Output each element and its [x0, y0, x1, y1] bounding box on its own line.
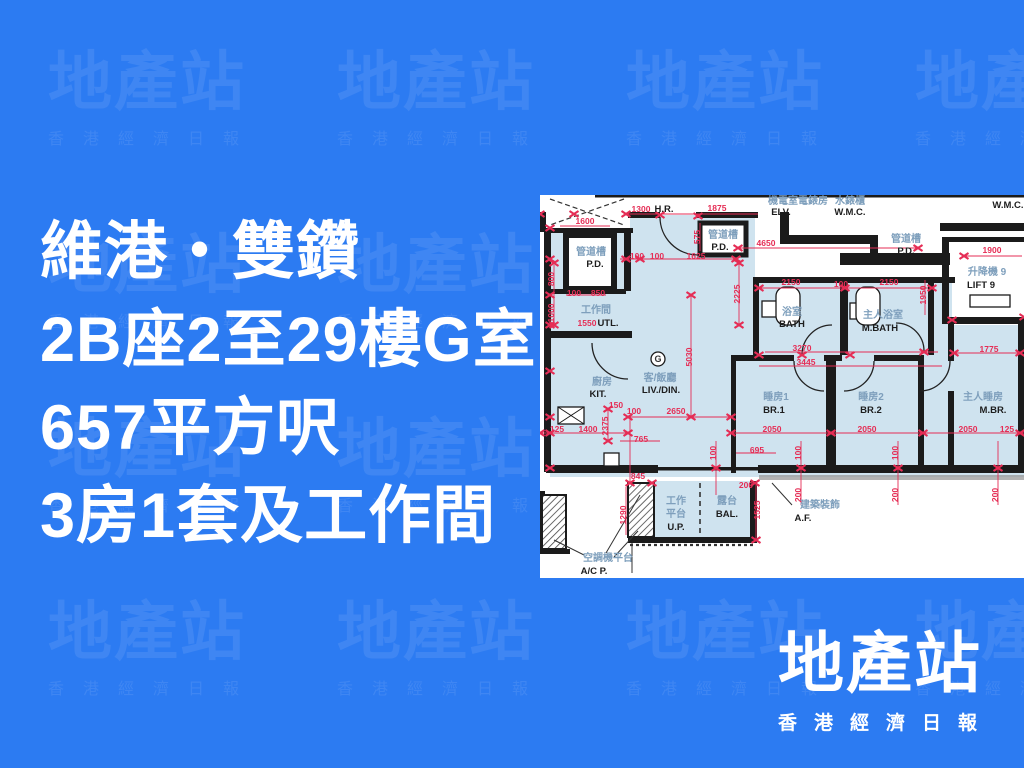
room-label: 管道槽 — [576, 245, 606, 258]
dimension-text: 100 — [708, 446, 718, 460]
headline-line-2: 2B座2至29樓G室 — [40, 304, 537, 376]
dimension-text: 100 — [890, 446, 900, 460]
room-label: UTL. — [597, 318, 618, 329]
room-label: BATH — [779, 319, 805, 330]
room-label: 建築裝飾 — [799, 498, 840, 511]
room-label: 工作間 — [581, 303, 611, 316]
room-label: 廚房 — [592, 375, 612, 388]
dimension-text: 100 — [650, 251, 664, 261]
dimension-text: 200 — [890, 488, 900, 502]
dimension-text: 575 — [692, 230, 702, 244]
room-label: U.P. — [667, 522, 684, 533]
dimension-text: 200 — [990, 488, 1000, 502]
room-label: 工作 — [666, 494, 686, 507]
poster-canvas: 地產站香港經濟日報地產站香港經濟日報地產站香港經濟日報地產站香港經濟日報地產站香… — [0, 0, 1024, 768]
dimension-text: 100 — [567, 288, 581, 298]
dimension-text: 100 — [630, 251, 644, 261]
headline-line-4: 3房1套及工作間 — [40, 480, 496, 552]
brand-logo: 地產站 香港經濟日報 — [778, 630, 994, 735]
room-label: 主人浴室 — [863, 308, 903, 321]
floorplan-image: 1300187516005751008508001000155010010016… — [540, 195, 1024, 578]
floorplan-svg: 1300187516005751008508001000155010010016… — [540, 195, 1024, 578]
watermark: 地產站香港經濟日報 — [337, 600, 547, 699]
dimension-text: 4650 — [757, 238, 776, 248]
room-label: KIT. — [590, 389, 607, 400]
dimension-text: 100 — [793, 446, 803, 460]
watermark: 地產站香港經濟日報 — [915, 50, 1024, 149]
room-label: 客/飯廳 — [643, 371, 677, 384]
dimension-text: 100 — [834, 279, 848, 289]
room-label: H.R. — [655, 204, 674, 215]
room-label: 空調機平台 — [583, 551, 633, 564]
dimension-text: 3270 — [793, 343, 812, 353]
ac-platform-mid — [628, 483, 654, 537]
dimension-text: 800 — [546, 272, 556, 286]
ac-platform-left — [542, 495, 566, 549]
watermark: 地產站香港經濟日報 — [626, 50, 836, 149]
room-label: 管道槽 — [891, 232, 921, 245]
dimension-text: 125 — [550, 424, 564, 434]
room-label: 睡房1 — [763, 390, 789, 403]
dimension-text: 1900 — [983, 245, 1002, 255]
dimension-text: 2150 — [880, 277, 899, 287]
room-label: 浴室 — [782, 305, 802, 318]
dimension-text: 1400 — [579, 424, 598, 434]
room-label: 主人睡房 — [963, 390, 1003, 403]
dimension-text: 1875 — [708, 203, 727, 213]
dimension-text: 765 — [634, 434, 648, 444]
room-label: LIFT 9 — [967, 280, 995, 291]
dimension-text: 200 — [739, 480, 753, 490]
room-label: 水錶櫃 — [834, 195, 865, 207]
dimension-text: 1550 — [578, 318, 597, 328]
headline-line-3: 657平方呎 — [40, 392, 340, 464]
room-label: P.D. — [897, 246, 914, 257]
dimension-text: 100 — [627, 406, 641, 416]
room-label: A/C P. — [581, 566, 608, 577]
room-label: M.BR. — [980, 405, 1007, 416]
room-label: BR.2 — [860, 405, 882, 416]
dimension-text: 1300 — [632, 204, 651, 214]
brand-logo-title: 地產站 — [778, 630, 994, 696]
room-label: 睡房2 — [858, 390, 884, 403]
room-label: BAL. — [716, 509, 738, 520]
dimension-text: 1775 — [980, 344, 999, 354]
room-label: A.F. — [795, 513, 812, 524]
dimension-text: 1525 — [752, 500, 762, 519]
dimension-text: 2650 — [667, 406, 686, 416]
af-band — [759, 475, 1024, 480]
dimension-text: 1625 — [687, 251, 706, 261]
room-label: 機電室電錶房 — [768, 195, 828, 207]
watermark: 地產站香港經濟日報 — [48, 600, 258, 699]
dimension-text: 2150 — [782, 277, 801, 287]
dimension-text: 2050 — [858, 424, 877, 434]
room-label: G — [654, 354, 661, 364]
dimension-text: 3445 — [797, 357, 816, 367]
room-label: 管道槽 — [708, 228, 738, 241]
dimension-text: 845 — [631, 471, 645, 481]
room-label: 露台 — [717, 494, 737, 507]
dimension-text: 1600 — [576, 216, 595, 226]
dimension-text: 850 — [591, 288, 605, 298]
dimension-text: 2375 — [600, 416, 610, 435]
dimension-text: 2050 — [763, 424, 782, 434]
dimension-text: 1000 — [546, 303, 556, 322]
dimension-text: 695 — [750, 445, 764, 455]
headline-line-1: 維港・雙鑽 — [40, 216, 360, 288]
dimension-text: 1290 — [618, 505, 628, 524]
dimension-text: 150 — [609, 400, 623, 410]
room-label: W.M.C. — [992, 200, 1023, 211]
room-label: BR.1 — [763, 405, 785, 416]
watermark: 地產站香港經濟日報 — [337, 50, 547, 149]
room-label: ELV. — [771, 207, 791, 218]
watermark: 地產站香港經濟日報 — [48, 50, 258, 149]
dimension-text: 2225 — [732, 284, 742, 303]
brand-logo-subtitle: 香港經濟日報 — [778, 708, 994, 735]
room-label: 升降機 9 — [968, 265, 1007, 278]
room-label: P.D. — [586, 259, 603, 270]
room-label: W.M.C. — [834, 207, 865, 218]
room-label: M.BATH — [862, 323, 898, 334]
room-label: P.D. — [711, 242, 728, 253]
dimension-text: 1950 — [918, 285, 928, 304]
dimension-text: 5030 — [684, 347, 694, 366]
room-label: 平台 — [666, 507, 686, 520]
room-label: LIV./DIN. — [642, 385, 680, 396]
dimension-text: 2050 — [959, 424, 978, 434]
dimension-text: 125 — [1000, 424, 1014, 434]
